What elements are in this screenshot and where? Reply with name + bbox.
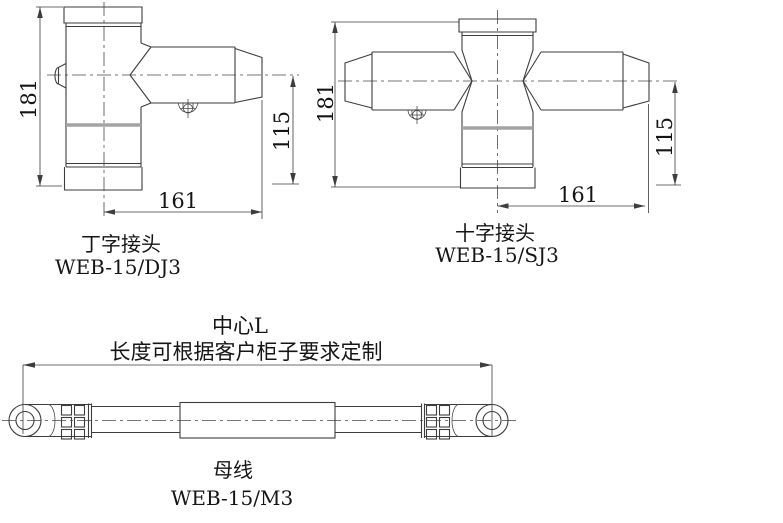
t-joint-end-cone [235, 49, 262, 103]
busbar-length-note: 长度可根据客户柜子要求定制 [110, 340, 383, 364]
cross-ground-bolt [408, 106, 426, 124]
t-joint-lower-seam [66, 164, 141, 168]
cross-dim-axis-height: 115 [653, 82, 681, 185]
arrowhead-up [290, 76, 296, 87]
cross-body-left-edge [462, 32, 472, 167]
arrowhead-right [480, 362, 492, 368]
t-joint-bottom-cap [65, 167, 143, 190]
cross-left-arm [345, 52, 472, 124]
busbar-model: WEB-15/M3 [171, 486, 293, 510]
busbar-body [2, 403, 516, 440]
arrowhead-left [498, 203, 509, 209]
t-joint-dim-axis-height: 115 [270, 76, 299, 184]
arrowhead-down [672, 174, 678, 185]
t-joint-title: 丁字接头 [81, 232, 161, 256]
dim-height-value: 181 [314, 83, 338, 123]
dim-length-value: 161 [558, 183, 598, 207]
arrowhead-left [104, 209, 115, 215]
t-joint-dim-height: 181 [17, 7, 63, 186]
right-clamp-block [422, 404, 450, 440]
arrowhead-down [37, 175, 43, 186]
arrowhead-right [634, 203, 645, 209]
busbar-title: 母线 [213, 458, 253, 482]
cross-dim-length: 161 [498, 104, 649, 213]
cross-joint-figure: 181 115 161 十字接头 WEB-15/SJ3 [314, 10, 681, 267]
dim-lines [331, 22, 460, 187]
cross-dim-height: 181 [314, 22, 460, 187]
dim-height-value: 181 [17, 79, 41, 119]
left-tube-edges [92, 407, 180, 433]
arrowhead-left [23, 362, 35, 368]
t-joint-ground-bolt [179, 99, 198, 118]
cross-joint-title: 十字接头 [455, 221, 535, 245]
t-joint-figure: 181 115 161 丁字接头 WEB-15/DJ3 [17, 2, 299, 279]
cross-body-right-edge [523, 32, 533, 167]
t-joint-top-cap [64, 7, 142, 23]
cad-drawing: 181 115 161 丁字接头 WEB-15/DJ3 [0, 0, 783, 523]
t-joint-model: WEB-15/DJ3 [55, 255, 181, 279]
arrowhead-down [290, 173, 296, 184]
dim-axis-value: 115 [270, 111, 294, 151]
arrowhead-right [251, 209, 262, 215]
t-joint-body [55, 7, 142, 190]
arrowhead-down [332, 176, 338, 187]
dim-axis-value: 115 [653, 117, 677, 157]
cross-joint-model: WEB-15/SJ3 [435, 243, 559, 267]
right-tube-edges [335, 407, 422, 433]
t-joint-side-nub [55, 64, 66, 89]
arrowhead-up [37, 7, 43, 18]
left-clamp-block [62, 404, 92, 440]
busbar-center-label: 中心L [212, 314, 268, 338]
bolt-crosshair [180, 99, 196, 118]
dim-length-value: 161 [158, 189, 198, 213]
drawing-sheet: 181 115 161 丁字接头 WEB-15/DJ3 [0, 0, 783, 523]
t-joint-dim-length: 161 [104, 100, 262, 219]
busbar-figure: 中心L 长度可根据客户柜子要求定制 [2, 314, 516, 510]
arrowhead-up [332, 22, 338, 33]
t-joint-arm [130, 43, 262, 118]
bolt-crosshair [409, 106, 425, 124]
arrowhead-up [672, 82, 678, 93]
